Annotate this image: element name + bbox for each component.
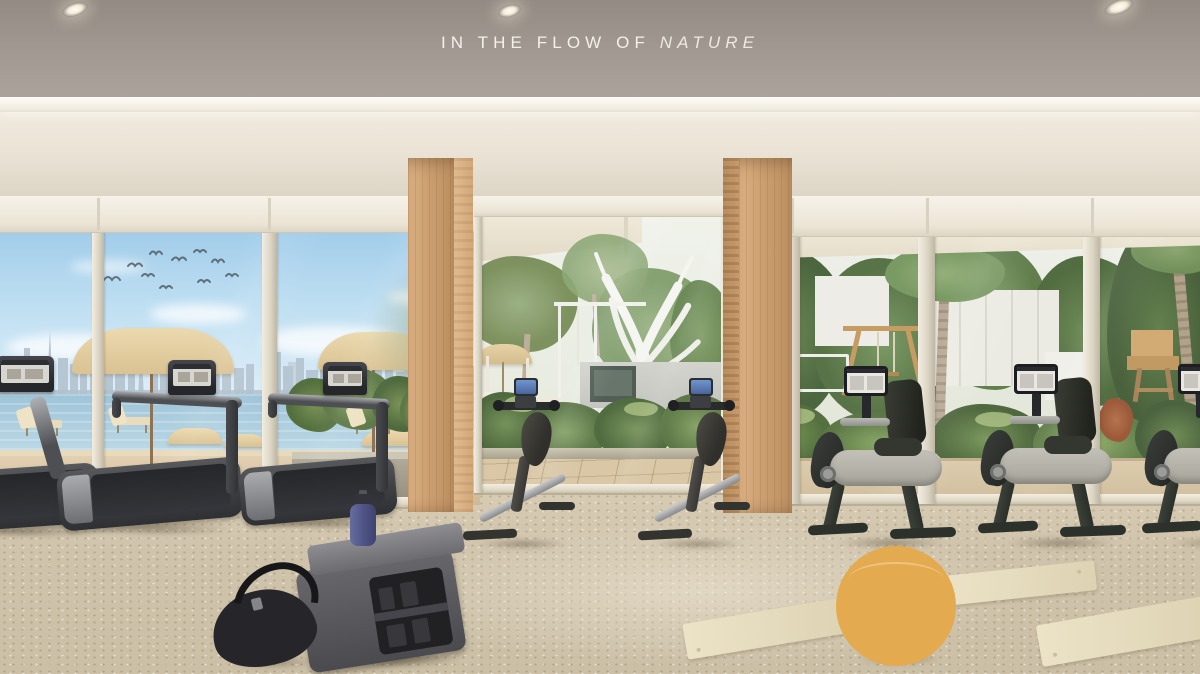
bike-seat-pan	[1044, 436, 1092, 454]
bike-screen	[1178, 364, 1200, 394]
gym-render-image: IN THE FLOW OF NATURE	[0, 0, 1200, 674]
window-valance-right	[729, 196, 1200, 237]
bike-screen	[1014, 364, 1058, 394]
machine-screen	[691, 380, 711, 394]
valance-gap	[97, 198, 100, 230]
treadmill-screen	[173, 364, 211, 386]
valance-gap	[926, 198, 929, 234]
treadmill-rear-post	[376, 402, 388, 492]
valance-gap	[268, 198, 271, 230]
treadmill-hood	[243, 471, 275, 521]
treadmill-console	[323, 362, 367, 395]
bike-console-arm	[1010, 416, 1060, 424]
treadmill-hood	[61, 474, 93, 524]
treadmill-rail-tip	[268, 400, 277, 418]
machine-console	[514, 378, 538, 396]
valance-gap	[1091, 198, 1094, 234]
window-frame	[474, 216, 482, 493]
glass-reflection	[474, 216, 729, 492]
bike-console-arm	[840, 418, 890, 426]
bike-crank	[820, 466, 836, 482]
window-mullion	[92, 226, 104, 507]
spotlight-icon	[497, 2, 522, 20]
machine-keypad	[690, 396, 711, 408]
treadmill-rail-tip	[112, 398, 121, 418]
handle-grip	[493, 400, 504, 411]
handle-grip	[668, 400, 679, 411]
treadmill-screen	[328, 366, 362, 386]
machine-console	[689, 378, 713, 396]
treadmill-console	[0, 356, 54, 392]
window-valance-left	[0, 196, 474, 233]
bike-console-stalk	[1032, 392, 1041, 418]
treadmill-rear-post	[226, 400, 238, 494]
wood-pillar-right	[723, 158, 792, 513]
treadmill-screen	[1, 360, 49, 383]
treadmill-console	[168, 360, 216, 395]
title-emphasis: NATURE	[660, 33, 759, 52]
bench-shelf-opening	[368, 567, 453, 656]
machine-screen	[516, 380, 536, 394]
spotlight-icon	[1103, 0, 1136, 19]
bike-crank	[1154, 464, 1170, 480]
window-valance-center	[474, 196, 729, 217]
bike-body	[1164, 448, 1200, 484]
cove-light	[0, 97, 1200, 112]
machine-keypad	[515, 396, 536, 408]
treadmill-belt	[90, 463, 231, 518]
window-view-pool-garden	[474, 216, 729, 492]
handle-grip	[549, 400, 560, 411]
ball-seam	[848, 562, 944, 598]
equipment-shadow	[986, 534, 1136, 552]
ceiling: IN THE FLOW OF NATURE	[0, 0, 1200, 97]
bike-seat-pan	[874, 438, 922, 456]
wood-pillar-left	[408, 158, 473, 512]
page-title: IN THE FLOW OF NATURE	[0, 33, 1200, 53]
ceiling-fascia	[0, 112, 1200, 196]
title-prefix: IN THE FLOW OF	[441, 33, 650, 52]
spotlight-icon	[61, 0, 90, 20]
bike-console-stalk	[862, 394, 871, 420]
bike-screen	[844, 366, 888, 396]
handle-grip	[724, 400, 735, 411]
bike-console-stalk	[1196, 392, 1200, 418]
rear-foot	[539, 502, 575, 510]
rear-foot	[714, 502, 750, 510]
bike-crank	[990, 464, 1006, 480]
